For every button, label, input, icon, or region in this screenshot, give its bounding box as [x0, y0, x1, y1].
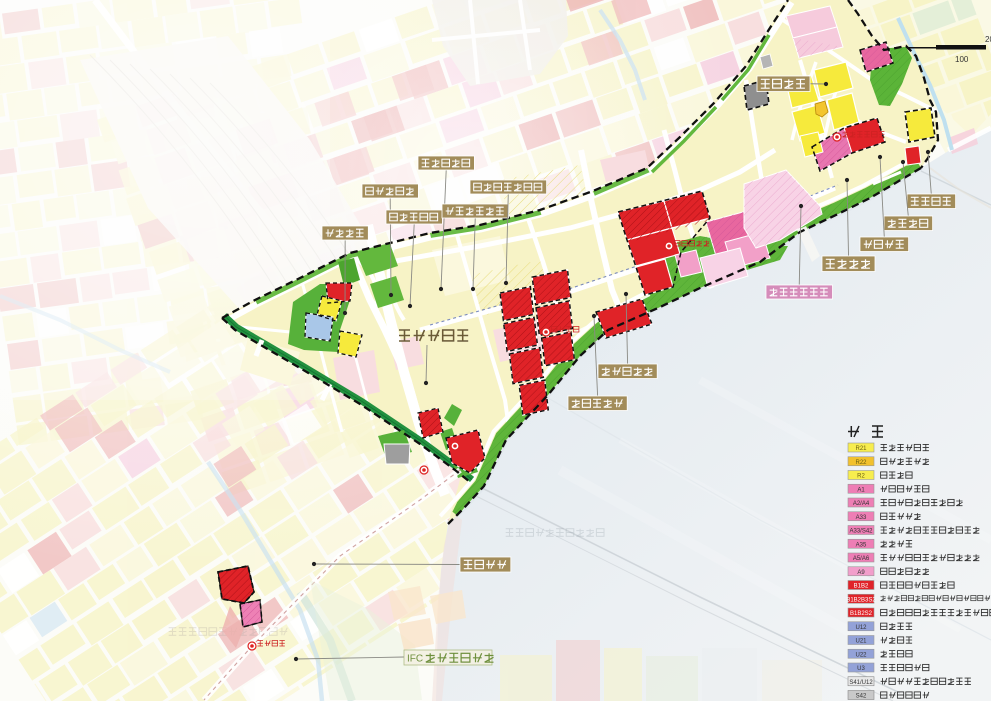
svg-text:U21: U21 [855, 639, 867, 645]
svg-text:IFC: IFC [407, 654, 423, 665]
svg-text:100: 100 [955, 55, 969, 64]
svg-text:A35: A35 [856, 542, 867, 548]
svg-text:S41/U12: S41/U12 [849, 680, 873, 686]
svg-text:A33/S42: A33/S42 [849, 529, 873, 535]
svg-text:U22: U22 [855, 652, 867, 658]
svg-text:A33: A33 [856, 515, 867, 521]
svg-text:B1B2: B1B2 [854, 584, 869, 590]
svg-text:R22: R22 [855, 460, 867, 466]
svg-text:200: 200 [985, 35, 991, 44]
svg-text:B1B2B3S2: B1B2B3S2 [846, 597, 876, 603]
svg-text:A2/A4: A2/A4 [853, 501, 870, 507]
svg-text:U3: U3 [857, 666, 865, 672]
svg-text:A1: A1 [857, 487, 865, 493]
svg-text:S42: S42 [856, 694, 867, 700]
svg-text:A5/A6: A5/A6 [853, 556, 870, 562]
svg-text:A9: A9 [857, 570, 865, 576]
svg-text:R21: R21 [855, 446, 867, 452]
svg-text:U12: U12 [855, 625, 867, 631]
svg-text:B1B2S2: B1B2S2 [850, 611, 873, 617]
svg-text:R2: R2 [857, 474, 865, 480]
